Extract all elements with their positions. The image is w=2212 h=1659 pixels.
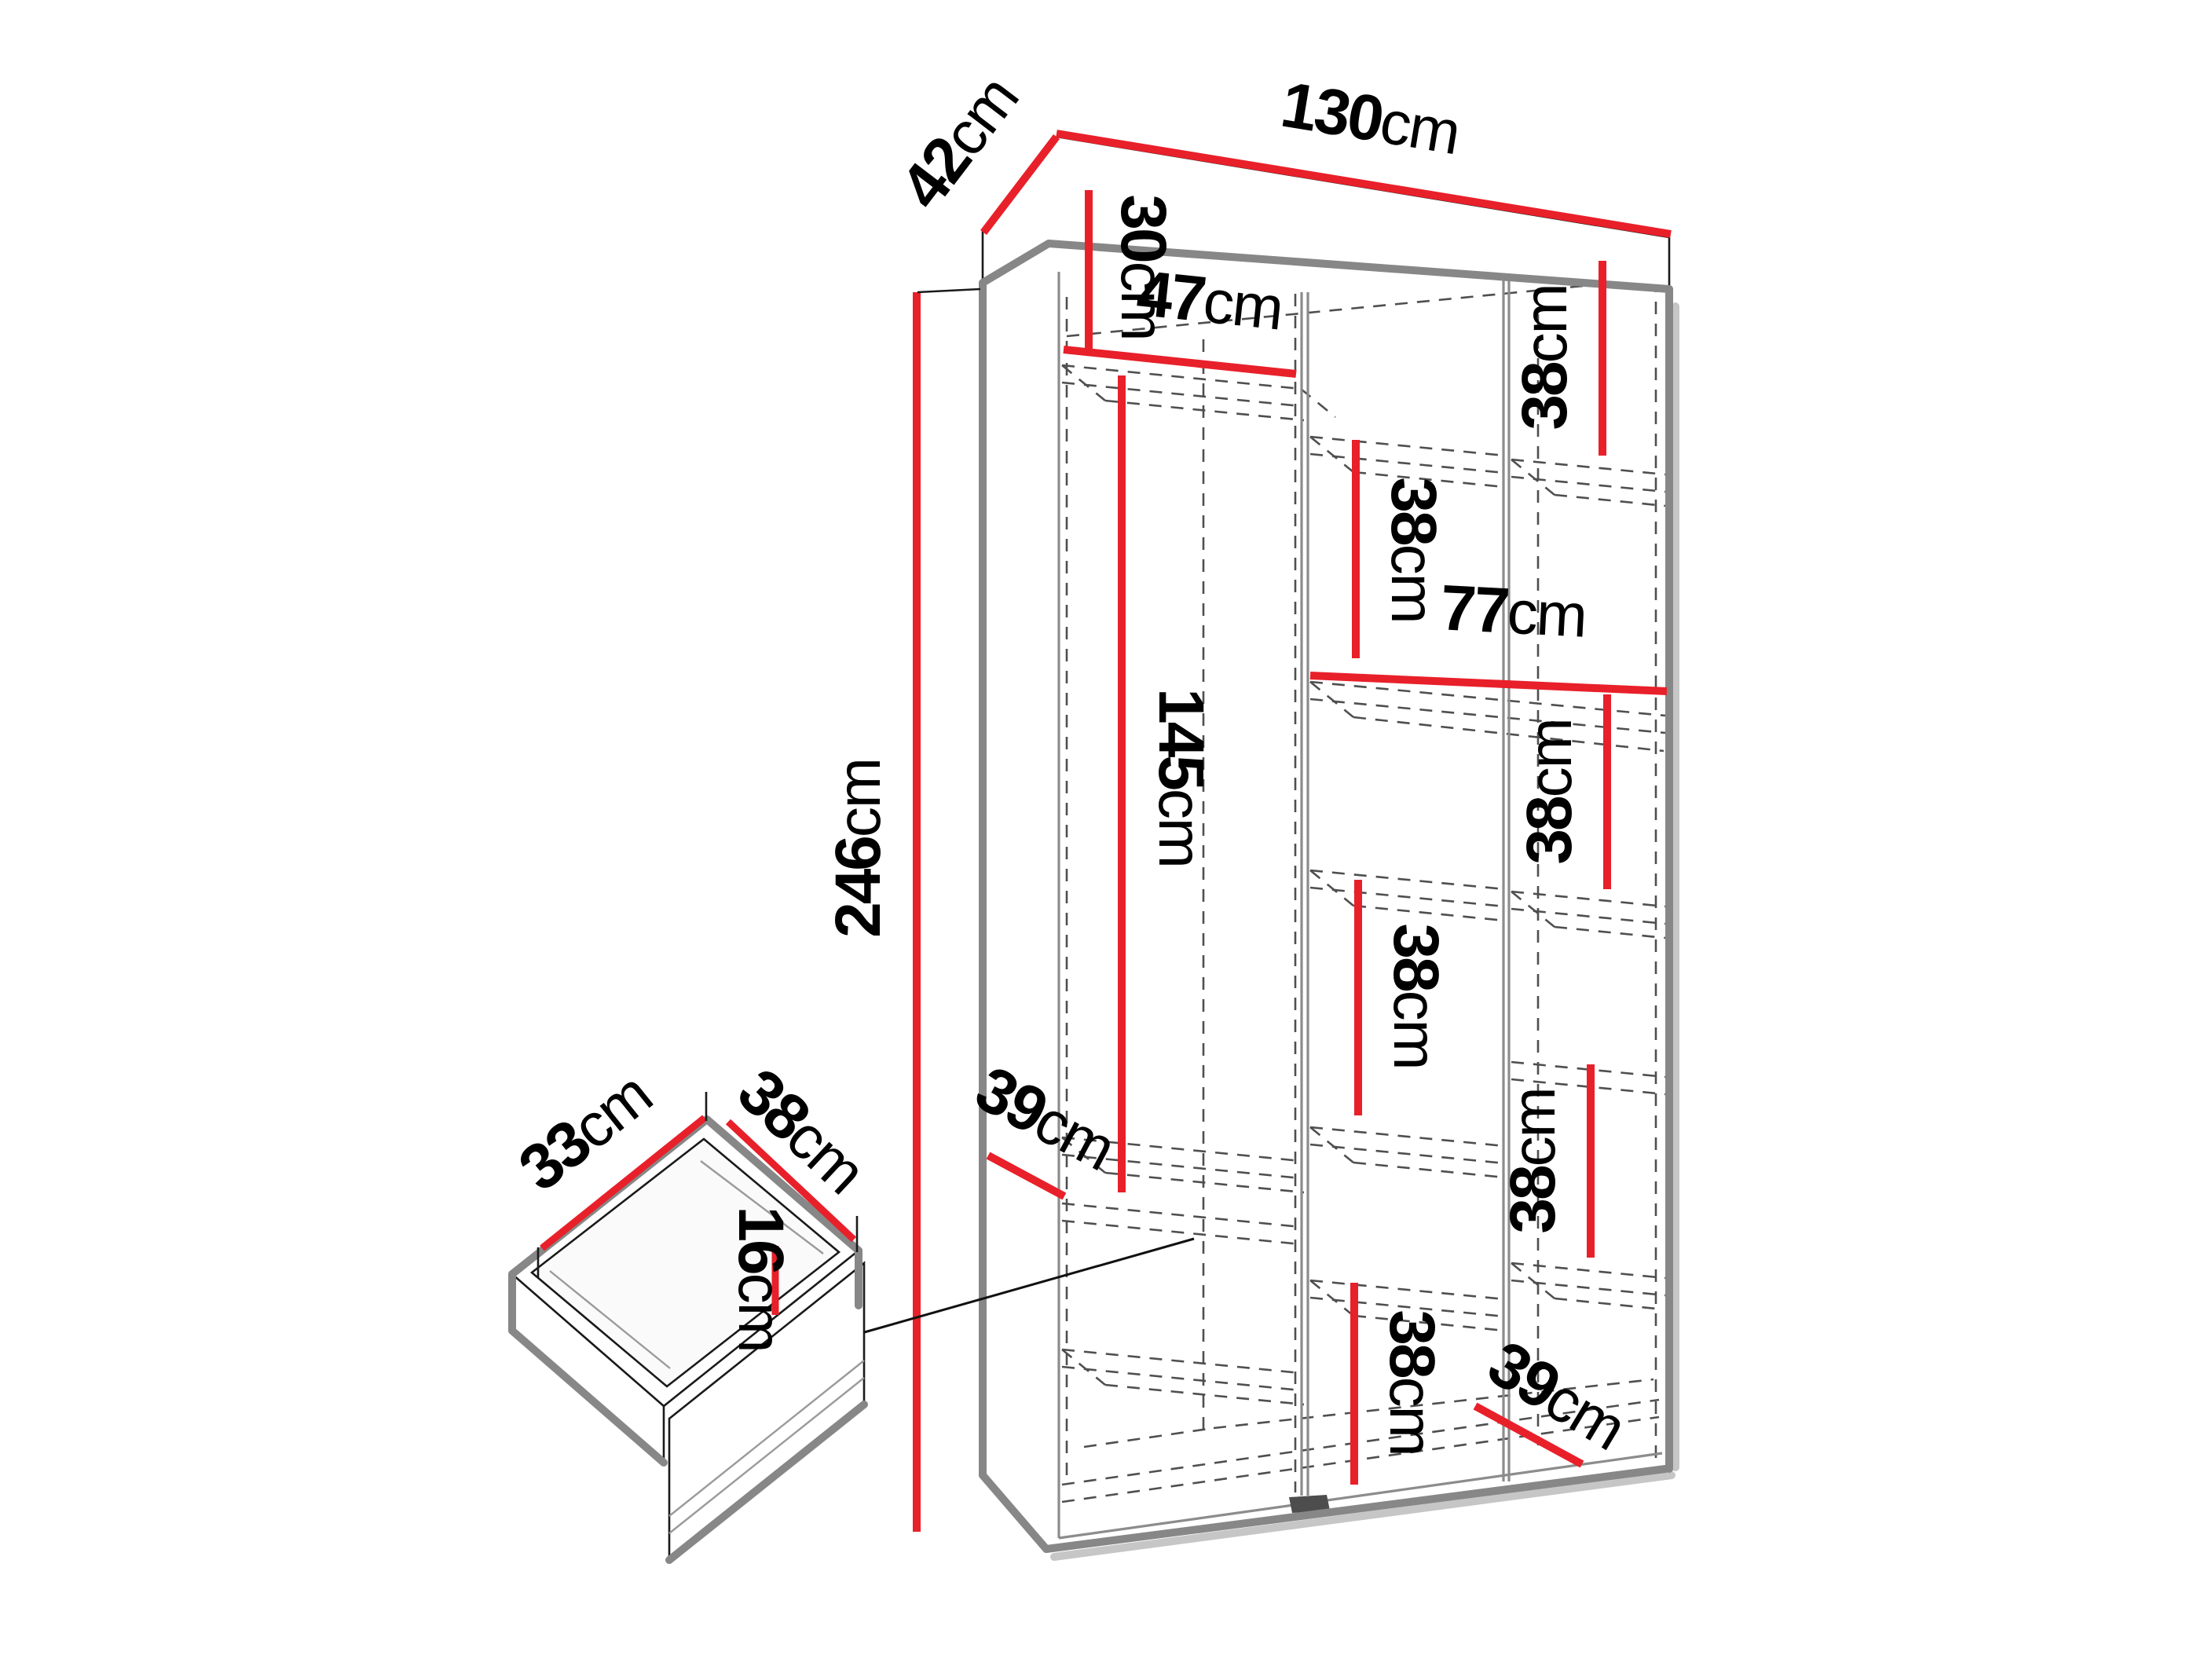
dim-label-mid38-top: 38cm	[1378, 477, 1449, 622]
dim-label-wide77: 77cm	[1439, 572, 1588, 651]
wardrobe-dimension-diagram: 130cm 42cm 246cm 30cm 47cm 38cm 38cm 77c…	[0, 0, 2212, 1659]
dim-label-right38-low: 38cm	[1497, 1088, 1569, 1233]
dim-tick-height-top	[917, 289, 980, 292]
dim-label-mid38-mid: 38cm	[1380, 923, 1452, 1068]
dim-label-hang145: 145cm	[1145, 688, 1217, 867]
dim-label-drawer16: 16cm	[725, 1206, 797, 1351]
dim-label-right38-mid: 38cm	[1514, 719, 1585, 864]
dim-label-right38-top: 38cm	[1509, 284, 1580, 430]
dim-label-width: 130cm	[1276, 69, 1465, 169]
dim-label-height: 246cm	[822, 759, 894, 938]
dim-label-mid38-bottom: 38cm	[1376, 1309, 1448, 1455]
